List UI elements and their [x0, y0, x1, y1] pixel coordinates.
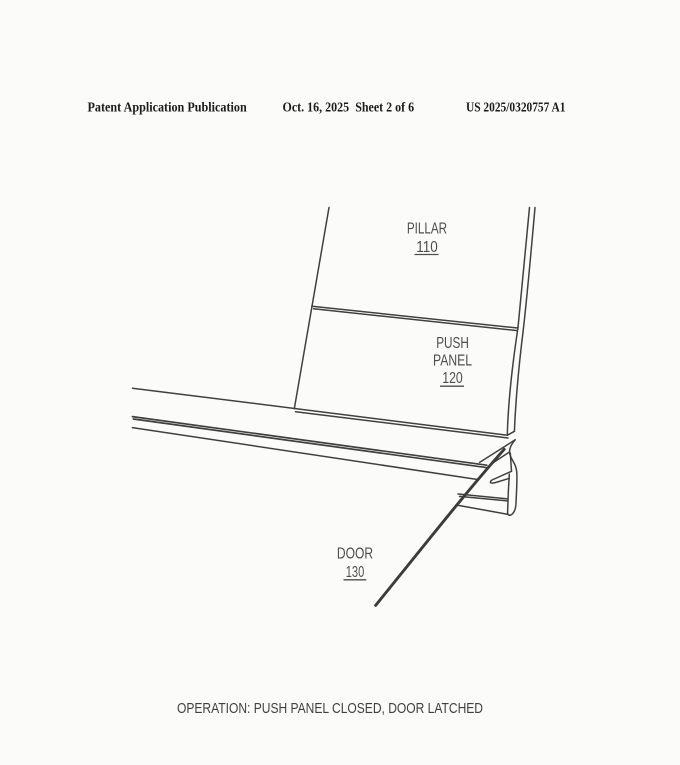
svg-text:PANEL: PANEL: [433, 353, 472, 370]
svg-text:110: 110: [416, 239, 438, 256]
svg-text:PILLAR: PILLAR: [407, 221, 447, 238]
svg-text:OPERATION: PUSH PANEL CLOSED,: OPERATION: PUSH PANEL CLOSED, DOOR LATCH…: [177, 700, 483, 717]
svg-text:130: 130: [346, 564, 365, 581]
svg-text:PUSH: PUSH: [436, 335, 469, 352]
svg-text:Sheet 2 of 6: Sheet 2 of 6: [355, 100, 414, 115]
svg-text:Oct. 16, 2025: Oct. 16, 2025: [283, 100, 350, 115]
svg-text:DOOR: DOOR: [337, 546, 373, 563]
svg-text:120: 120: [442, 370, 463, 387]
svg-text:US 2025/0320757 A1: US 2025/0320757 A1: [466, 100, 566, 115]
svg-text:Patent Application Publication: Patent Application Publication: [88, 100, 248, 115]
